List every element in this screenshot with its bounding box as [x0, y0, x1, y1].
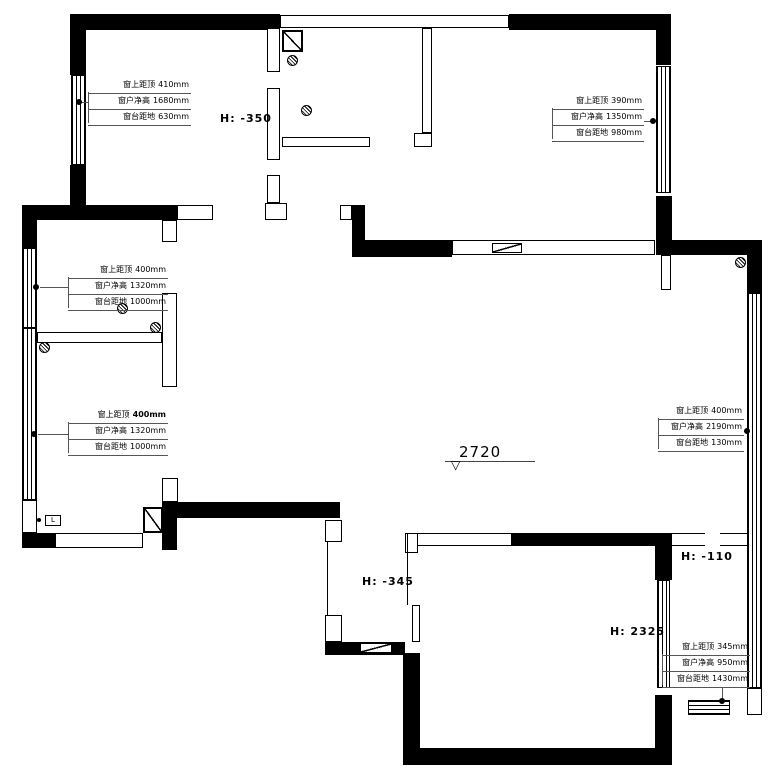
wall-segment: [55, 533, 143, 548]
annotation-row: 窗上距顶400mm: [68, 263, 168, 279]
annotation-label: 窗台距地: [123, 110, 155, 125]
wall-segment: [352, 205, 365, 257]
annotation-row: 窗户净高1320mm: [68, 424, 168, 440]
annotation-value: 1320mm: [130, 279, 166, 294]
wall-segment: [405, 748, 672, 765]
annotation-value: 630mm: [158, 110, 189, 125]
wall-segment: [22, 500, 37, 533]
wall-segment: [412, 605, 420, 642]
annotation-value: 980mm: [611, 126, 642, 141]
annotation-value: 2190mm: [706, 420, 742, 435]
annotation-row: 窗台距地1430mm: [662, 672, 750, 688]
annotation-bracket: [662, 654, 663, 685]
wall-segment: [70, 14, 86, 75]
annotation-label: 窗台距地: [95, 295, 127, 310]
leader-dot: [650, 118, 656, 124]
drain-icon: [150, 322, 161, 333]
wall-segment: [509, 14, 671, 30]
leader-dot: [76, 99, 82, 105]
wall-segment: [661, 255, 671, 290]
wall-segment: [340, 205, 352, 220]
annotation-row: 窗上距顶400mm: [68, 408, 168, 424]
height-label: H: 2325: [610, 625, 665, 638]
annotation-bracket: [552, 108, 553, 139]
wall-segment: [452, 240, 655, 255]
wall-segment: [265, 203, 287, 220]
annotation-label: 窗上距顶: [576, 94, 608, 109]
corridor-line: [407, 533, 408, 605]
annotation-value: 345mm: [717, 640, 748, 655]
annotation-row: 窗上距顶390mm: [552, 94, 644, 110]
annotation-label: 窗台距地: [576, 126, 608, 141]
drain-icon: [735, 257, 746, 268]
leader-line: [38, 434, 68, 435]
annotation-value: 1320mm: [130, 424, 166, 439]
annotation-row: 窗户净高1350mm: [552, 110, 644, 126]
annotation-label: 窗户净高: [682, 656, 714, 671]
annotation-label: 窗户净高: [118, 94, 150, 109]
annotation-bracket: [658, 418, 659, 449]
wall-segment: [162, 502, 177, 550]
leader-dot: [719, 698, 725, 704]
wall-segment: [365, 240, 452, 257]
window-annotation: 窗上距顶400mm 窗户净高2190mm 窗台距地130mm: [658, 404, 744, 452]
annotation-value: 1000mm: [130, 440, 166, 455]
window-symbol: [656, 66, 671, 193]
wall-segment: [22, 220, 37, 250]
gas-meter-icon: L: [45, 515, 61, 526]
gas-meter-dot: [37, 518, 41, 522]
annotation-bracket: [68, 422, 69, 453]
annotation-row: 窗户净高1680mm: [88, 94, 191, 110]
wall-segment: [177, 502, 340, 518]
annotation-label: 窗户净高: [95, 279, 127, 294]
sliding-door-icon: [492, 243, 522, 253]
window-symbol: [22, 328, 37, 500]
annotation-row: 窗上距顶345mm: [662, 640, 750, 656]
drain-icon: [301, 105, 312, 116]
wall-segment: [70, 14, 280, 30]
wall-segment: [655, 533, 672, 580]
wall-segment: [512, 533, 655, 546]
annotation-bracket: [88, 92, 89, 123]
annotation-label: 窗上距顶: [123, 78, 155, 93]
annotation-label: 窗上距顶: [100, 263, 132, 278]
annotation-value: 1000mm: [130, 295, 166, 310]
wall-segment: [325, 520, 342, 542]
flue-icon: [282, 30, 303, 52]
wall-segment: [656, 196, 672, 255]
annotation-value: 1430mm: [712, 672, 748, 687]
leader-dot: [31, 431, 37, 437]
annotation-value: 400mm: [133, 408, 166, 423]
corridor-line: [720, 545, 747, 546]
wall-segment: [325, 615, 342, 642]
window-annotation: 窗上距顶390mm 窗户净高1350mm 窗台距地980mm: [552, 94, 644, 142]
annotation-value: 390mm: [611, 94, 642, 109]
annotation-row: 窗台距地980mm: [552, 126, 644, 142]
annotation-value: 950mm: [717, 656, 748, 671]
window-annotation: 窗上距顶410mm 窗户净高1680mm 窗台距地630mm: [88, 78, 191, 126]
annotation-row: 窗台距地1000mm: [68, 440, 168, 456]
window-symbol: [71, 75, 86, 165]
leader-line: [40, 287, 68, 288]
wall-segment: [414, 133, 432, 147]
wall-segment: [37, 332, 162, 343]
window-annotation: 窗上距顶400mm 窗户净高1320mm 窗台距地1000mm: [68, 263, 168, 311]
wall-segment: [22, 205, 177, 220]
partition-segment: [267, 175, 280, 203]
drain-icon: [287, 55, 298, 66]
annotation-label: 窗上距顶: [98, 408, 130, 423]
level-triangle-icon: ▽: [451, 459, 460, 471]
wall-segment: [162, 478, 178, 502]
sliding-door-icon: [360, 643, 392, 653]
annotation-label: 窗台距地: [95, 440, 127, 455]
annotation-row: 窗上距顶400mm: [658, 404, 744, 420]
height-label: H: -350: [220, 112, 272, 125]
corridor-line: [327, 542, 328, 615]
wall-segment: [282, 137, 370, 147]
flue-icon: [143, 507, 163, 533]
corridor-line: [672, 533, 705, 534]
wall-segment: [747, 688, 762, 715]
floor-plan: L 窗上距顶410mm 窗户净高1680mm 窗台距地630mm 窗上距顶390…: [0, 0, 779, 784]
wall-segment: [672, 240, 762, 255]
wall-segment: [280, 15, 509, 28]
annotation-row: 窗台距地630mm: [88, 110, 191, 126]
leader-dot: [33, 284, 39, 290]
annotation-label: 窗户净高: [95, 424, 127, 439]
partition-segment: [267, 28, 280, 72]
annotation-label: 窗台距地: [676, 436, 708, 451]
annotation-row: 窗上距顶410mm: [88, 78, 191, 94]
annotation-value: 1680mm: [153, 94, 189, 109]
leader-dot: [744, 428, 750, 434]
wall-segment: [656, 14, 671, 65]
window-annotation: 窗上距顶400mm 窗户净高1320mm 窗台距地1000mm: [68, 408, 168, 456]
annotation-label: 窗上距顶: [676, 404, 708, 419]
wall-segment: [422, 28, 432, 133]
annotation-row: 窗户净高950mm: [662, 656, 750, 672]
window-annotation: 窗上距顶345mm 窗户净高950mm 窗台距地1430mm: [662, 640, 750, 688]
annotation-bracket: [68, 277, 69, 308]
wall-segment: [177, 205, 213, 220]
drain-icon: [39, 342, 50, 353]
wall-segment: [162, 220, 177, 242]
wall-segment: [405, 533, 512, 546]
level-marker-value: 2720: [459, 443, 501, 461]
annotation-value: 130mm: [711, 436, 742, 451]
corridor-line: [672, 545, 705, 546]
annotation-row: 窗台距地130mm: [658, 436, 744, 452]
annotation-value: 400mm: [711, 404, 742, 419]
annotation-value: 410mm: [158, 78, 189, 93]
annotation-value: 1350mm: [606, 110, 642, 125]
wall-segment: [747, 255, 762, 293]
wall-segment: [22, 533, 55, 548]
annotation-label: 窗户净高: [671, 420, 703, 435]
annotation-row: 窗户净高2190mm: [658, 420, 744, 436]
annotation-label: 窗台距地: [677, 672, 709, 687]
annotation-row: 窗台距地1000mm: [68, 295, 168, 311]
annotation-value: 400mm: [135, 263, 166, 278]
window-symbol: [747, 293, 762, 688]
annotation-row: 窗户净高1320mm: [68, 279, 168, 295]
annotation-label: 窗户净高: [571, 110, 603, 125]
wall-segment: [403, 653, 420, 765]
height-label: H: -110: [681, 550, 733, 563]
height-label: H: -345: [362, 575, 414, 588]
annotation-label: 窗上距顶: [682, 640, 714, 655]
